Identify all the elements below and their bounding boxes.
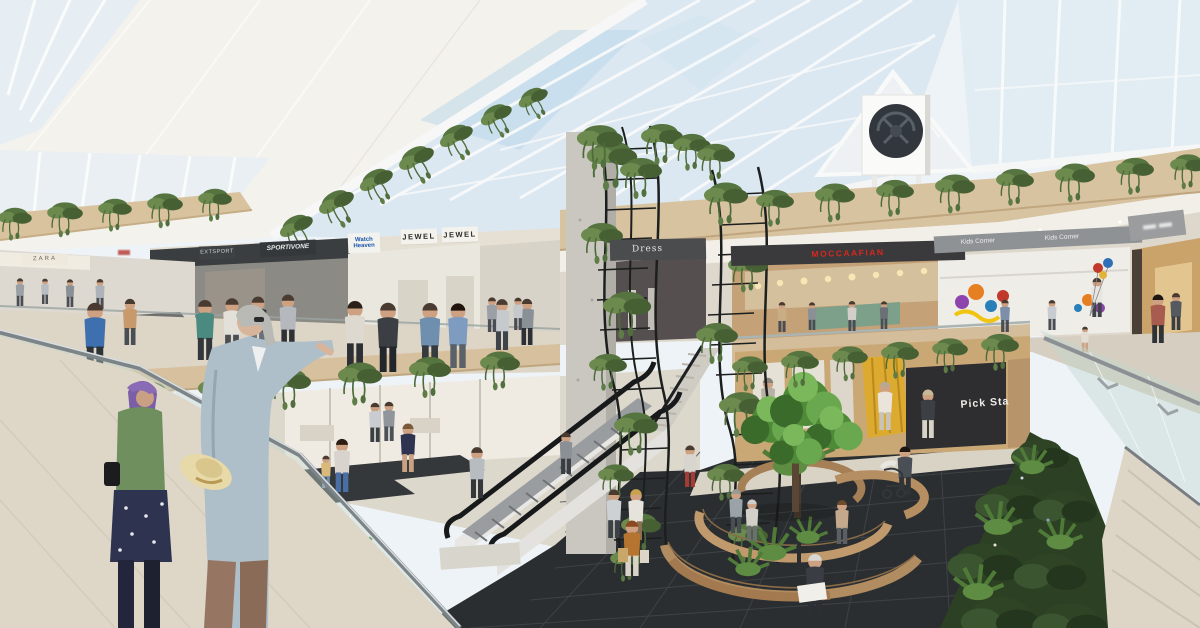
store-sign-jewel-left: JEWEL (401, 228, 438, 245)
mall-atrium-rendering: ZARA EXTSPORT SPORTIVONE Watch Heaven JE… (0, 0, 1200, 628)
store-sign-sportivone: SPORTIVONE (260, 240, 317, 258)
scene-illustration (0, 0, 1200, 628)
balloon-yellow (1099, 271, 1107, 279)
skylight-right-slope (958, 0, 1200, 170)
handbag (104, 462, 120, 486)
store-sign-dress: Dress (610, 238, 706, 261)
store-sign-zara: ZARA (22, 254, 68, 266)
store-sign-jewel-right: JEWEL (442, 226, 479, 243)
sunglasses (254, 317, 264, 322)
balloon-blue (1103, 258, 1113, 268)
store-sign-watch-heaven: Watch Heaven (348, 232, 381, 253)
distant-red-sign (118, 250, 130, 255)
store-sign-extsport: EXTSPORT (199, 245, 235, 259)
